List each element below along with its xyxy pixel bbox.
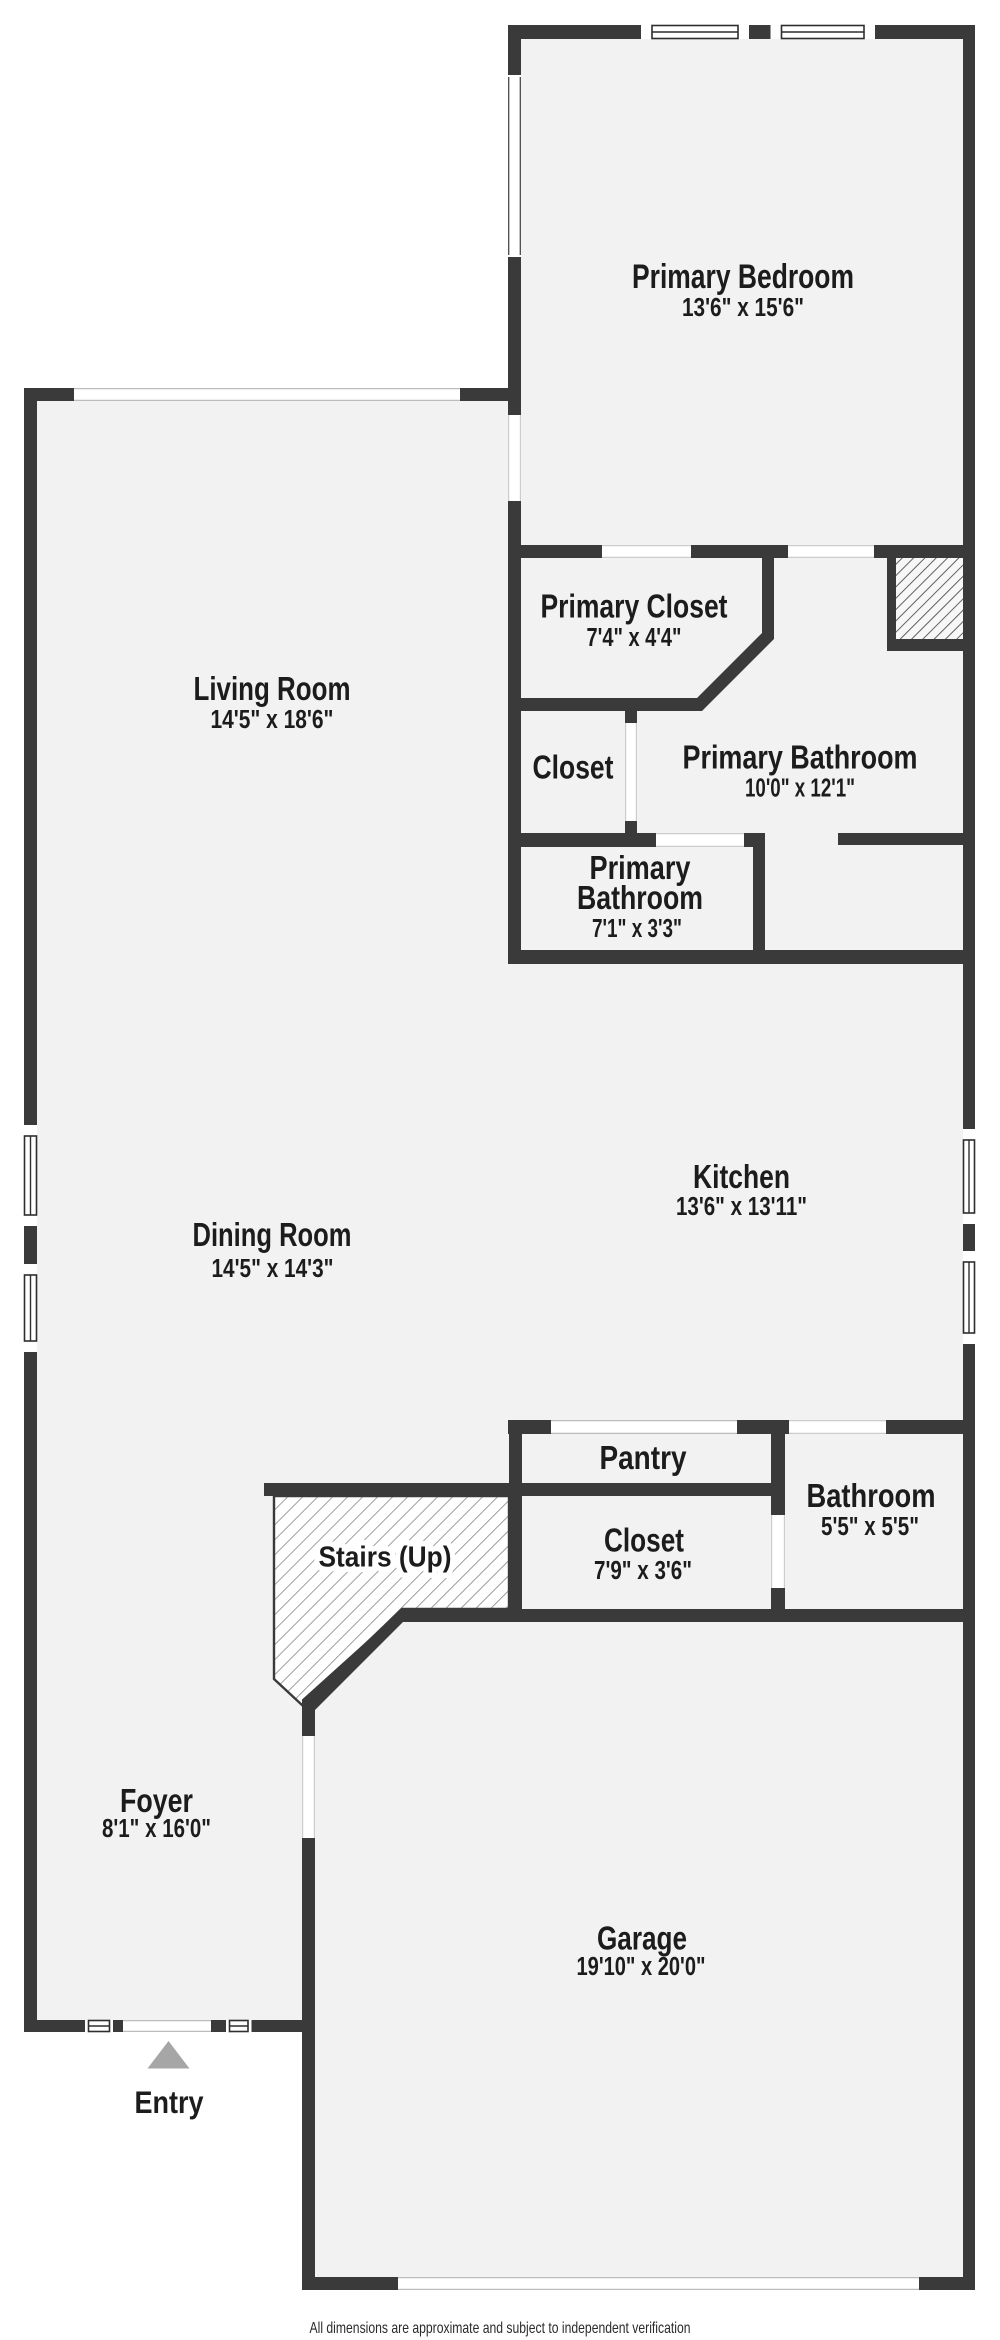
svg-text:10'0" x 12'1": 10'0" x 12'1" — [745, 775, 855, 803]
svg-text:Entry: Entry — [135, 2084, 204, 2120]
svg-text:8'1" x 16'0": 8'1" x 16'0" — [102, 1815, 211, 1843]
svg-text:Dining Room: Dining Room — [193, 1216, 352, 1253]
svg-text:Pantry: Pantry — [600, 1439, 688, 1476]
svg-text:14'5" x 14'3": 14'5" x 14'3" — [212, 1255, 334, 1283]
svg-text:13'6" x 15'6": 13'6" x 15'6" — [682, 294, 804, 322]
svg-text:Stairs (Up): Stairs (Up) — [319, 1542, 452, 1574]
svg-text:Bathroom: Bathroom — [577, 879, 703, 916]
svg-text:Primary Closet: Primary Closet — [541, 588, 728, 625]
svg-text:Living Room: Living Room — [194, 670, 351, 707]
svg-text:5'5" x 5'5": 5'5" x 5'5" — [821, 1513, 919, 1541]
svg-text:Closet: Closet — [604, 1522, 684, 1559]
svg-text:14'5" x 18'6": 14'5" x 18'6" — [211, 706, 334, 734]
svg-text:Bathroom: Bathroom — [807, 1477, 936, 1514]
svg-text:13'6" x 13'11": 13'6" x 13'11" — [676, 1193, 807, 1221]
svg-text:Foyer: Foyer — [120, 1782, 193, 1819]
svg-text:19'10" x 20'0": 19'10" x 20'0" — [577, 1953, 706, 1981]
svg-text:Primary Bedroom: Primary Bedroom — [632, 258, 854, 296]
svg-text:Primary Bathroom: Primary Bathroom — [683, 739, 918, 776]
svg-text:All dimensions are approximate: All dimensions are approximate and subje… — [310, 2320, 691, 2337]
svg-text:7'9" x 3'6": 7'9" x 3'6" — [594, 1557, 692, 1585]
svg-text:Closet: Closet — [533, 749, 614, 786]
svg-text:Kitchen: Kitchen — [693, 1158, 790, 1195]
svg-text:7'4" x 4'4": 7'4" x 4'4" — [587, 624, 682, 652]
svg-text:7'1" x 3'3": 7'1" x 3'3" — [592, 915, 682, 943]
svg-text:Garage: Garage — [597, 1920, 687, 1957]
